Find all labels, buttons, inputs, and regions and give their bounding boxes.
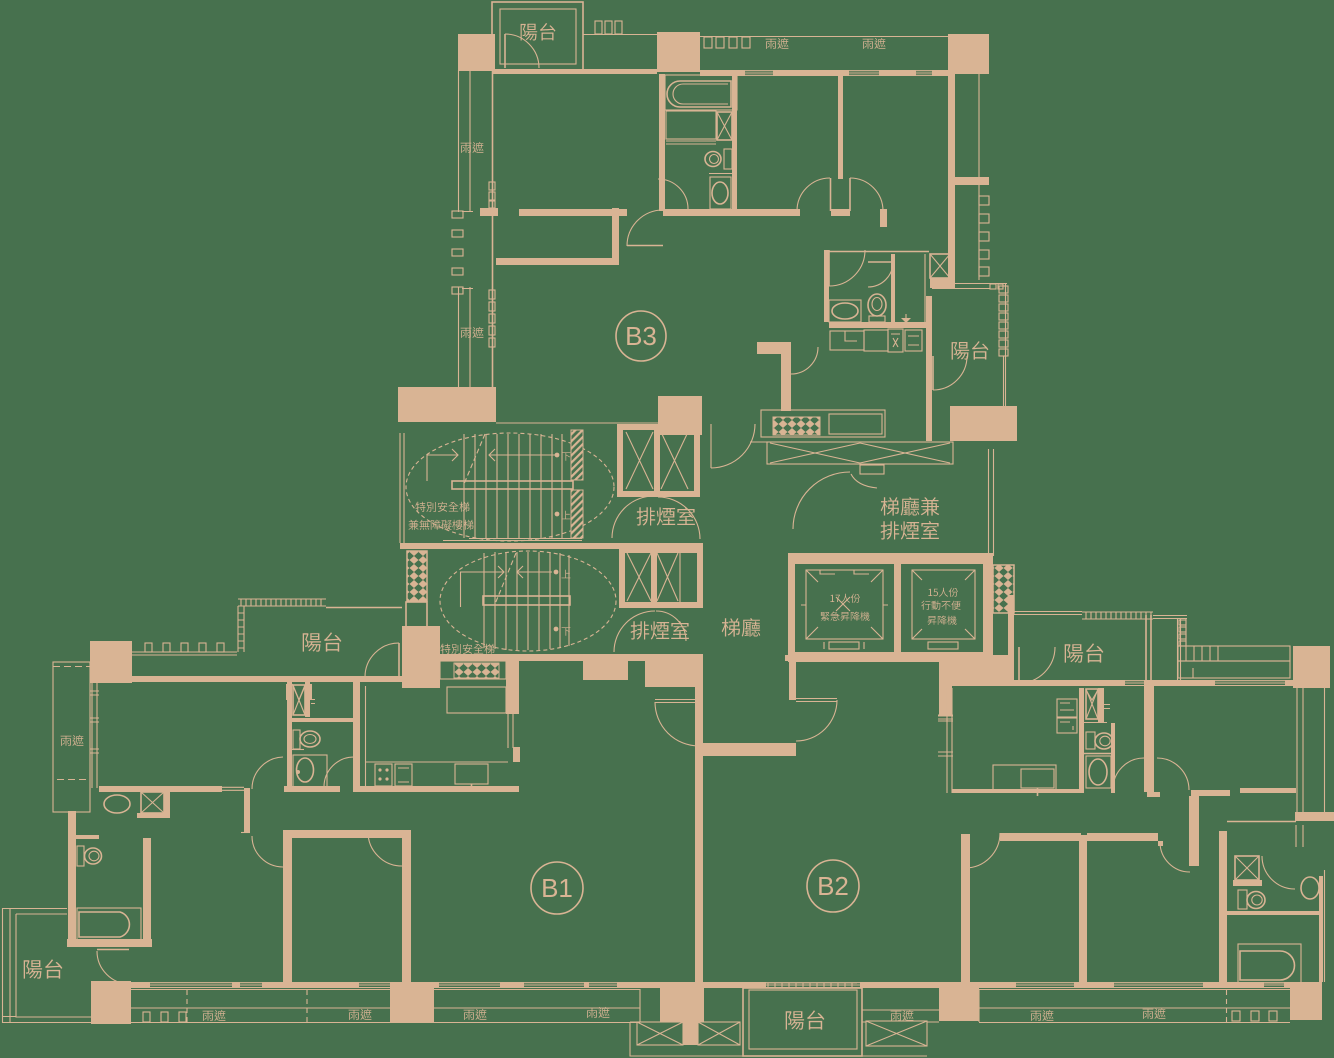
svg-text:B2: B2 (817, 871, 849, 901)
svg-text:B1: B1 (541, 873, 573, 903)
svg-text:B3: B3 (625, 321, 657, 351)
